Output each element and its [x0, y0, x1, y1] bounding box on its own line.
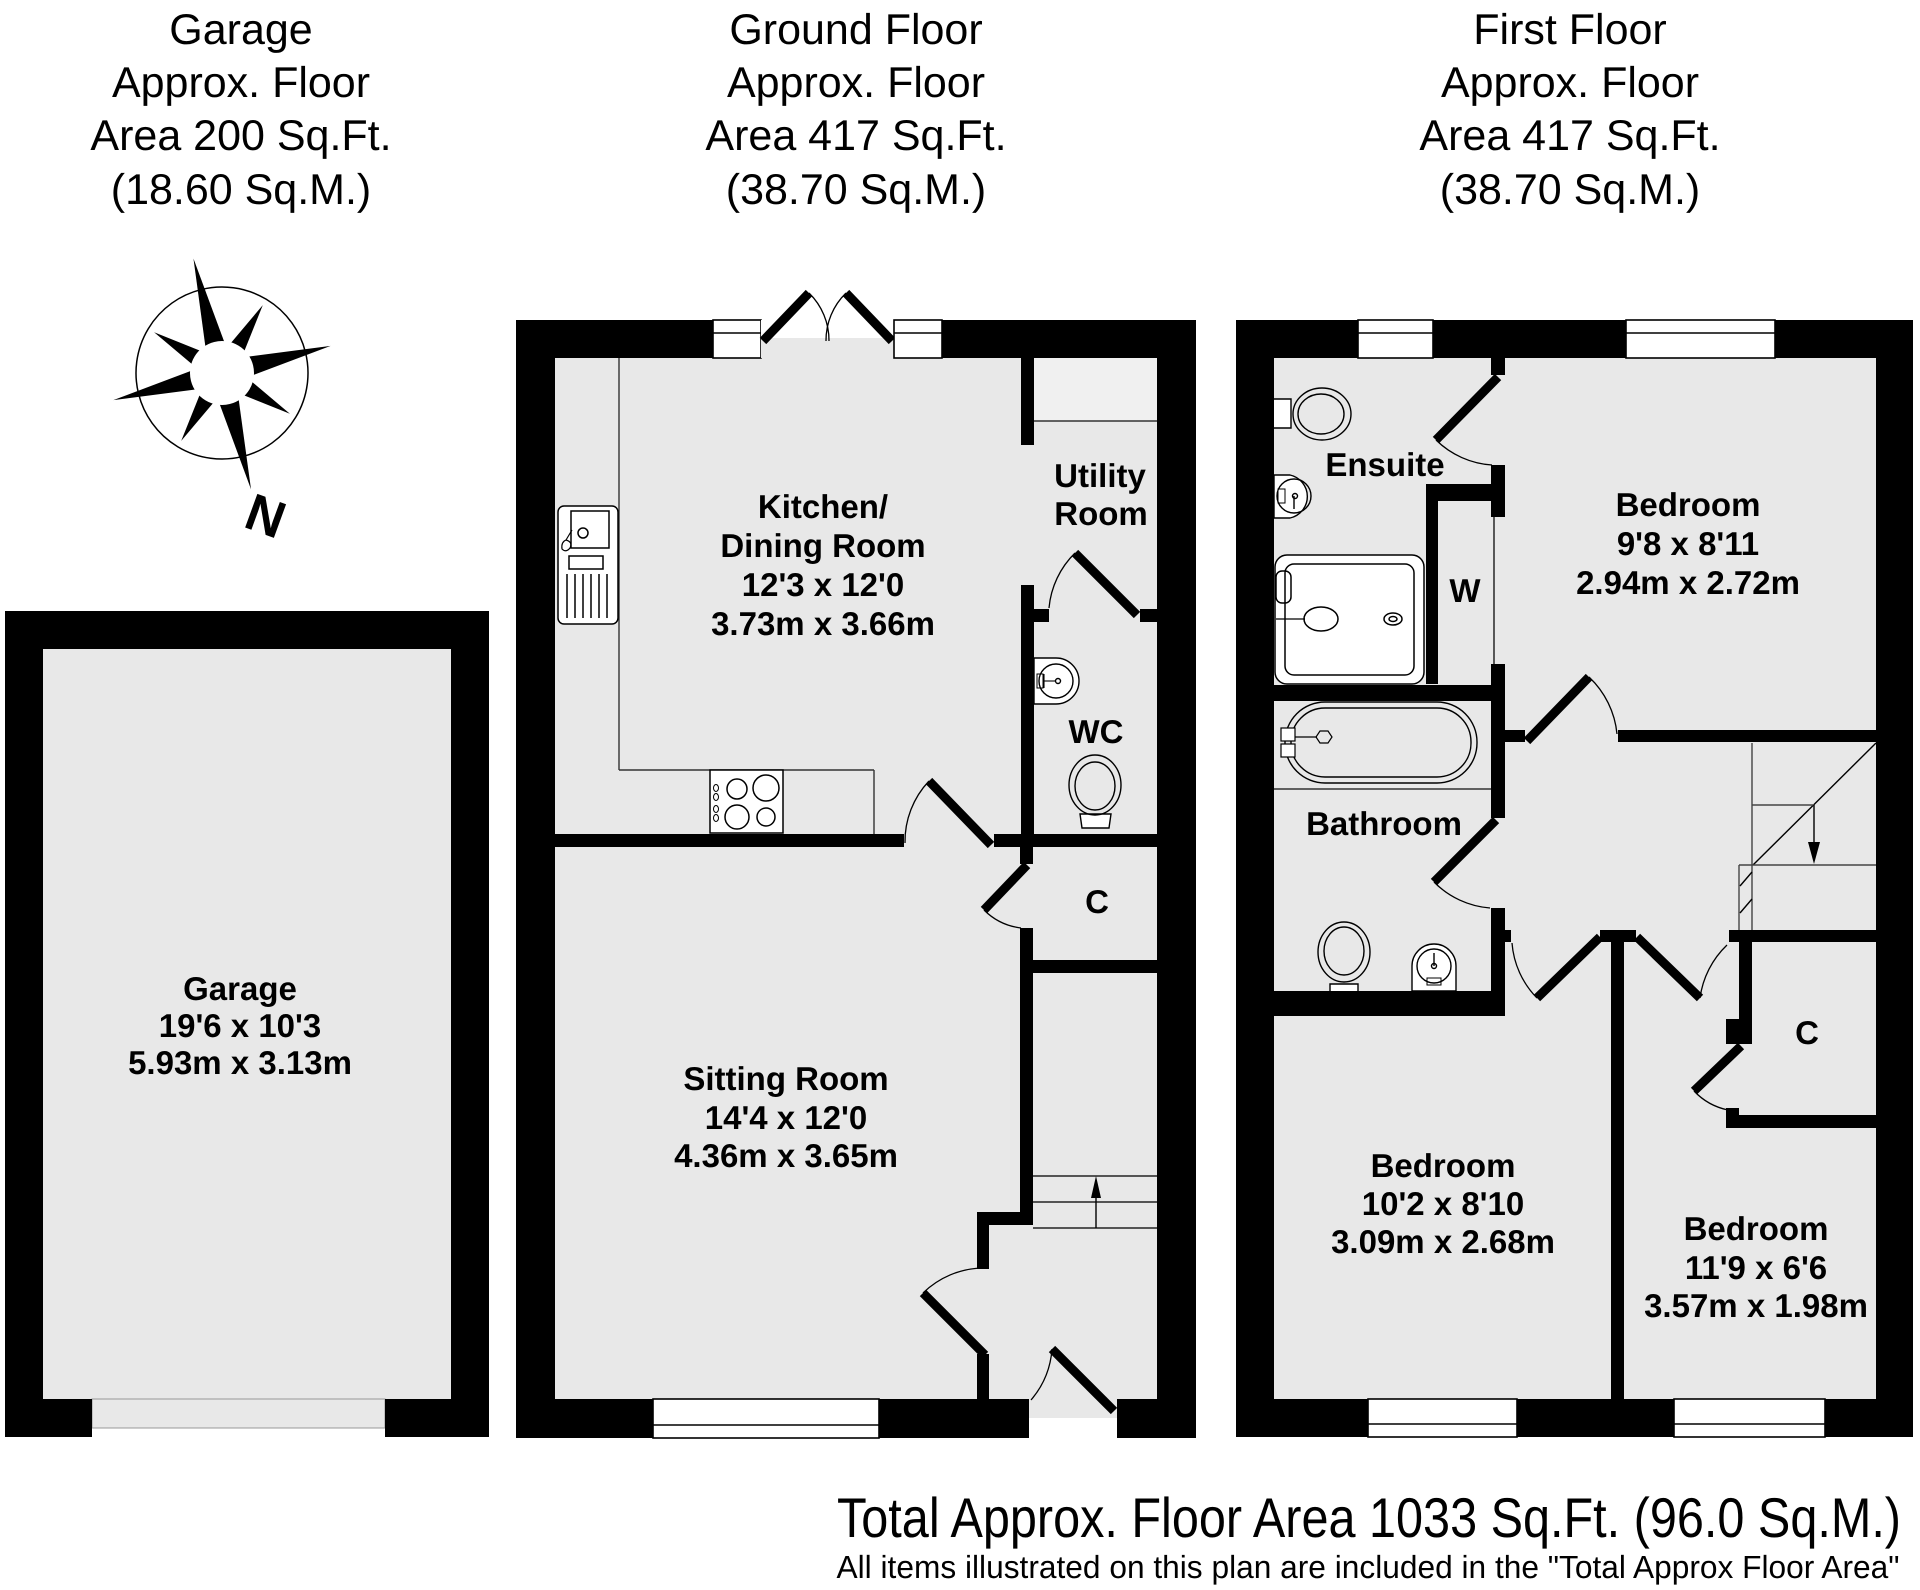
svg-text:3.57m x 1.98m: 3.57m x 1.98m	[1644, 1287, 1868, 1324]
svg-text:WC: WC	[1069, 713, 1124, 750]
svg-text:Garage: Garage	[169, 6, 312, 54]
svg-text:Kitchen/: Kitchen/	[758, 488, 888, 525]
svg-text:Utility: Utility	[1054, 457, 1146, 494]
svg-text:(38.70 Sq.M.): (38.70 Sq.M.)	[1440, 166, 1701, 214]
svg-text:11'9 x 6'6: 11'9 x 6'6	[1685, 1249, 1827, 1286]
svg-text:Total Approx. Floor Area 1033: Total Approx. Floor Area 1033 Sq.Ft. (96…	[837, 1486, 1901, 1549]
svg-text:10'2 x 8'10: 10'2 x 8'10	[1362, 1185, 1525, 1222]
svg-text:5.93m x 3.13m: 5.93m x 3.13m	[128, 1044, 352, 1081]
svg-text:Sitting Room: Sitting Room	[683, 1060, 888, 1097]
svg-text:Ensuite: Ensuite	[1325, 446, 1444, 483]
svg-text:Area 417 Sq.Ft.: Area 417 Sq.Ft.	[1419, 112, 1720, 160]
svg-text:Area 200 Sq.Ft.: Area 200 Sq.Ft.	[90, 112, 391, 160]
svg-text:Area 417 Sq.Ft.: Area 417 Sq.Ft.	[705, 112, 1006, 160]
svg-text:19'6 x 10'3: 19'6 x 10'3	[159, 1007, 322, 1044]
svg-text:Bathroom: Bathroom	[1306, 805, 1462, 842]
svg-text:All items illustrated on this: All items illustrated on this plan are i…	[837, 1549, 1900, 1585]
svg-text:Ground Floor: Ground Floor	[729, 6, 982, 54]
svg-text:2.94m x 2.72m: 2.94m x 2.72m	[1576, 564, 1800, 601]
svg-text:(38.70 Sq.M.): (38.70 Sq.M.)	[726, 166, 987, 214]
svg-text:W: W	[1449, 572, 1481, 609]
svg-text:Approx. Floor: Approx. Floor	[112, 59, 370, 107]
svg-text:C: C	[1795, 1014, 1819, 1051]
svg-text:Room: Room	[1054, 495, 1148, 532]
svg-text:C: C	[1085, 883, 1109, 920]
svg-text:Bedroom: Bedroom	[1684, 1210, 1829, 1247]
svg-text:First Floor: First Floor	[1473, 6, 1667, 54]
svg-text:Bedroom: Bedroom	[1616, 486, 1761, 523]
svg-text:Approx. Floor: Approx. Floor	[1441, 59, 1699, 107]
svg-text:(18.60 Sq.M.): (18.60 Sq.M.)	[111, 166, 372, 214]
svg-text:3.73m x 3.66m: 3.73m x 3.66m	[711, 605, 935, 642]
svg-text:3.09m x 2.68m: 3.09m x 2.68m	[1331, 1223, 1555, 1260]
svg-text:Bedroom: Bedroom	[1371, 1147, 1516, 1184]
svg-text:Approx. Floor: Approx. Floor	[727, 59, 985, 107]
svg-text:4.36m x 3.65m: 4.36m x 3.65m	[674, 1137, 898, 1174]
svg-text:Garage: Garage	[183, 970, 297, 1007]
svg-text:9'8 x 8'11: 9'8 x 8'11	[1617, 525, 1759, 562]
svg-text:14'4 x 12'0: 14'4 x 12'0	[705, 1099, 868, 1136]
svg-text:12'3 x 12'0: 12'3 x 12'0	[742, 566, 905, 603]
svg-text:Dining Room: Dining Room	[720, 527, 925, 564]
